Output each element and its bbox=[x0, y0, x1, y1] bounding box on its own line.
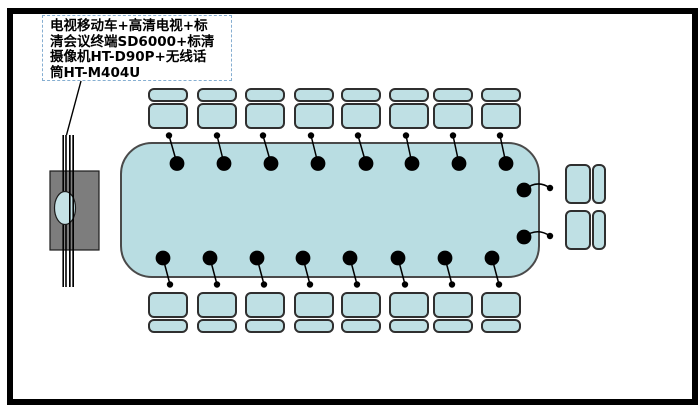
chair bbox=[481, 88, 521, 129]
chair-backrest bbox=[294, 88, 334, 102]
chair-seat bbox=[148, 103, 188, 129]
equipment-label-line: 清会议终端SD6000+标清 bbox=[50, 35, 225, 51]
chair bbox=[294, 292, 334, 333]
chair-seat bbox=[481, 292, 521, 318]
chair-backrest bbox=[389, 319, 429, 333]
chair-seat bbox=[197, 292, 237, 318]
chair-seat bbox=[565, 164, 591, 204]
chair bbox=[389, 88, 429, 129]
chair-seat bbox=[389, 292, 429, 318]
chair-backrest bbox=[481, 88, 521, 102]
chair bbox=[341, 292, 381, 333]
diagram-canvas: 电视移动车+高清电视+标 清会议终端SD6000+标清 摄像机HT-D90P+无… bbox=[0, 0, 700, 413]
chair-seat bbox=[481, 103, 521, 129]
chair-backrest bbox=[433, 88, 473, 102]
chair-backrest bbox=[197, 88, 237, 102]
chair-seat bbox=[245, 103, 285, 129]
chair-seat bbox=[341, 103, 381, 129]
chair-backrest bbox=[294, 319, 334, 333]
chair bbox=[565, 210, 606, 250]
chair-backrest bbox=[148, 88, 188, 102]
chair-backrest bbox=[341, 88, 381, 102]
chair-backrest bbox=[592, 210, 606, 250]
chair bbox=[389, 292, 429, 333]
equipment-label-line: 电视移动车+高清电视+标 bbox=[50, 19, 225, 35]
chair-seat bbox=[433, 292, 473, 318]
chair-seat bbox=[148, 292, 188, 318]
chair-seat bbox=[565, 210, 591, 250]
conference-table bbox=[120, 142, 540, 278]
chair bbox=[245, 292, 285, 333]
chair bbox=[197, 88, 237, 129]
chair-backrest bbox=[341, 319, 381, 333]
equipment-label-line: 摄像机HT-D90P+无线话 bbox=[50, 50, 225, 66]
chair-seat bbox=[197, 103, 237, 129]
chair bbox=[565, 164, 606, 204]
chair-backrest bbox=[245, 319, 285, 333]
chair bbox=[148, 88, 188, 129]
chair-backrest bbox=[481, 319, 521, 333]
chair bbox=[148, 292, 188, 333]
chair bbox=[294, 88, 334, 129]
chair-seat bbox=[433, 103, 473, 129]
chair-backrest bbox=[148, 319, 188, 333]
chair-backrest bbox=[389, 88, 429, 102]
chair bbox=[481, 292, 521, 333]
chair bbox=[245, 88, 285, 129]
chair-seat bbox=[245, 292, 285, 318]
chair-seat bbox=[294, 292, 334, 318]
chair-backrest bbox=[433, 319, 473, 333]
chair bbox=[341, 88, 381, 129]
equipment-label-line: 筒HT-M404U bbox=[50, 66, 225, 82]
equipment-label: 电视移动车+高清电视+标 清会议终端SD6000+标清 摄像机HT-D90P+无… bbox=[42, 15, 232, 81]
chair-backrest bbox=[197, 319, 237, 333]
chair-seat bbox=[389, 103, 429, 129]
chair bbox=[433, 88, 473, 129]
chair bbox=[433, 292, 473, 333]
chair-seat bbox=[341, 292, 381, 318]
chair-seat bbox=[294, 103, 334, 129]
chair-backrest bbox=[245, 88, 285, 102]
chair bbox=[197, 292, 237, 333]
chair-backrest bbox=[592, 164, 606, 204]
